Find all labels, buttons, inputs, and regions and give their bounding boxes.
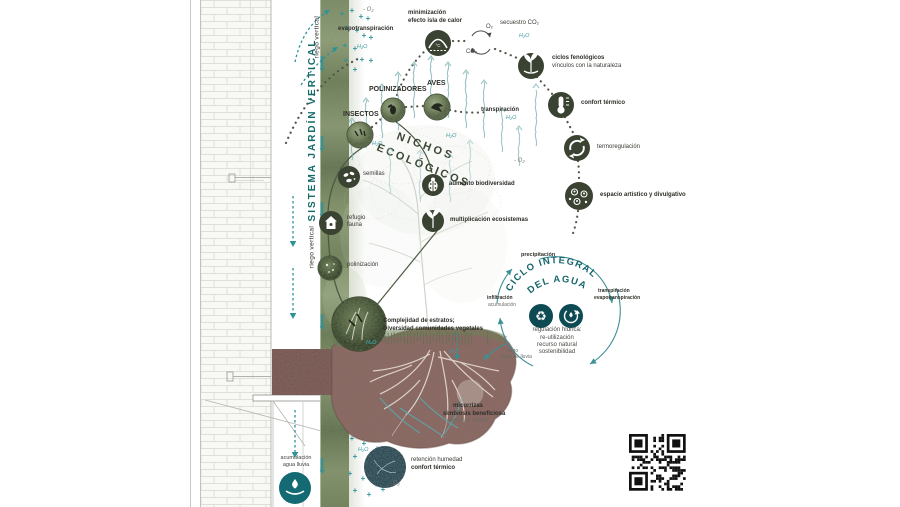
mycos-rhizas-label: mycos + rhizas bbox=[448, 418, 488, 424]
leader-line bbox=[273, 401, 305, 446]
co2-sequestration-label: secuestro CO₂ bbox=[500, 20, 539, 26]
o2-label: O₂ bbox=[486, 24, 493, 30]
insects-photo bbox=[347, 122, 373, 148]
water-regulation-label-2: recurso natural bbox=[537, 342, 577, 348]
svg-text:+: + bbox=[353, 65, 358, 74]
svg-text:+: + bbox=[340, 9, 345, 18]
svg-text:°C: °C bbox=[435, 43, 441, 48]
thermometer-icon bbox=[548, 92, 574, 118]
thermoregulation-label: termoregulación bbox=[597, 144, 640, 150]
refuge-label-1: refugio bbox=[347, 215, 365, 221]
phenological-cycles-label: ciclos fenológicos bbox=[552, 55, 604, 61]
pollinators-photo bbox=[381, 98, 405, 122]
minus-o2-top: - O₂ bbox=[363, 7, 374, 13]
svg-text:+: + bbox=[350, 434, 355, 443]
svg-text:+: + bbox=[369, 33, 374, 42]
soil-root-mass bbox=[272, 328, 516, 449]
water-regulation-label-3: sostenibilidad bbox=[539, 349, 575, 355]
heat-island-icon: °C bbox=[425, 30, 451, 56]
ladybug-icon bbox=[422, 174, 444, 196]
h2o-top-right: H₂O bbox=[519, 34, 529, 40]
thermoregulation-icon bbox=[564, 135, 590, 161]
artistic-space-label: espacio artístico y divulgativo bbox=[600, 192, 686, 198]
sprout-hand-icon bbox=[518, 52, 544, 79]
riego-vertical-label-mid: riego vertical bbox=[310, 226, 317, 268]
water-regulation-label-1: re-utilización bbox=[540, 335, 574, 341]
rainwater-storage-icon bbox=[279, 472, 311, 504]
water-regulation-label-0: regulación hídrica: bbox=[532, 327, 581, 333]
h2o-topleft: H₂O bbox=[357, 45, 367, 51]
strata-label-2: Diversidad comunidades vegetales bbox=[383, 326, 483, 332]
h2o-soil-1: H₂O bbox=[366, 341, 376, 347]
accumulation-label: acumulación bbox=[488, 303, 516, 308]
refuge-label-2: fauna bbox=[347, 222, 362, 228]
wc-transpiration-label: transpiración bbox=[598, 289, 630, 294]
seeds-label: semillas bbox=[363, 171, 385, 177]
h2o-canopy-2: H₂O bbox=[372, 142, 382, 148]
strata-complexity-photo bbox=[332, 297, 386, 351]
diagram-drawing-layer: NICHOS ECOLÓGICOS CICLO INTEGRAL bbox=[0, 0, 900, 507]
svg-text:+: + bbox=[360, 55, 365, 64]
svg-text:+: + bbox=[343, 41, 348, 50]
water-drop-cycle-icon bbox=[559, 304, 583, 328]
svg-text:+: + bbox=[361, 474, 366, 483]
h2o-soil-2: H₂O bbox=[449, 350, 458, 355]
h2o-canopy-1: H₂O bbox=[446, 134, 456, 140]
co2-label: CO₂ bbox=[466, 49, 477, 55]
evapotranspiration-label: evapotranspiración bbox=[338, 26, 393, 32]
precipitation-label: precipitación bbox=[521, 253, 555, 259]
ecosystems-label: multiplicación ecosistemas bbox=[450, 217, 528, 223]
pollination-label: polinización bbox=[347, 262, 378, 268]
transpiration-label: transpiración bbox=[481, 107, 519, 113]
svg-text:♻: ♻ bbox=[535, 309, 547, 324]
strata-label-1: Complejidad de estratos; bbox=[383, 318, 455, 324]
svg-text:+: + bbox=[344, 56, 349, 65]
birds-photo bbox=[424, 94, 450, 120]
svg-text:+: + bbox=[359, 12, 364, 21]
moisture-retention-label: retención humedad bbox=[411, 457, 462, 463]
minus-o2-mid: - O₂ bbox=[514, 158, 525, 164]
infiltration-label: infiltración bbox=[487, 296, 513, 301]
pollination-photo bbox=[318, 256, 342, 280]
insects-label: INSECTOS bbox=[343, 111, 379, 118]
svg-text:+: + bbox=[362, 31, 367, 40]
biodiversity-label: aumento biodiversidad bbox=[449, 181, 515, 187]
vertical-system-title: SISTEMA JARDÍN VERTICAL bbox=[308, 39, 319, 222]
svg-text:+: + bbox=[367, 490, 372, 499]
svg-text:+: + bbox=[353, 452, 358, 461]
heat-island-label-1: minimización bbox=[408, 10, 446, 16]
h2o-transpiration: H₂O bbox=[506, 116, 516, 122]
water-reuse-icon: ♻ bbox=[529, 304, 553, 328]
rain-storage-label-2: agua lluvia bbox=[283, 463, 309, 469]
birds-label: AVES bbox=[427, 80, 446, 87]
pollinators-label: POLINIZADORES bbox=[369, 86, 427, 93]
wc-evapotranspiration-label: evapotranspiración bbox=[594, 296, 640, 301]
mycorrhiza-label: micorrizas bbox=[453, 403, 483, 409]
h2o-bottom: H₂O bbox=[358, 448, 368, 454]
community-icon bbox=[565, 182, 593, 210]
birdhouse-icon bbox=[319, 211, 343, 235]
minus-o2-bottom: - O₂ bbox=[389, 481, 400, 487]
svg-text:+: + bbox=[353, 486, 358, 495]
water-cycle-title-2: DEL AGUA bbox=[526, 274, 589, 296]
vertical-garden-diagram: NICHOS ECOLÓGICOS CICLO INTEGRAL bbox=[0, 0, 900, 507]
heat-island-label-2: efecto isla de calor bbox=[408, 18, 462, 24]
riego-vertical-label-top: riego vertical bbox=[315, 16, 322, 58]
seeds-icon bbox=[338, 166, 360, 188]
svg-text:+: + bbox=[369, 56, 374, 65]
thermal-comfort-label: confort térmico bbox=[581, 100, 625, 106]
svg-text:+: + bbox=[366, 14, 371, 23]
qr-code bbox=[624, 429, 691, 496]
soil-thermal-comfort-label: confort térmico bbox=[411, 465, 455, 471]
svg-text:+: + bbox=[350, 6, 355, 15]
symbiosis-label: simbiosis beneficiosa bbox=[443, 411, 505, 417]
nature-links-label: vínculos con la naturaleza bbox=[552, 63, 621, 69]
rain-irrigation-label-2: agua de lluvia bbox=[501, 355, 532, 360]
svg-text:+: + bbox=[348, 469, 353, 478]
